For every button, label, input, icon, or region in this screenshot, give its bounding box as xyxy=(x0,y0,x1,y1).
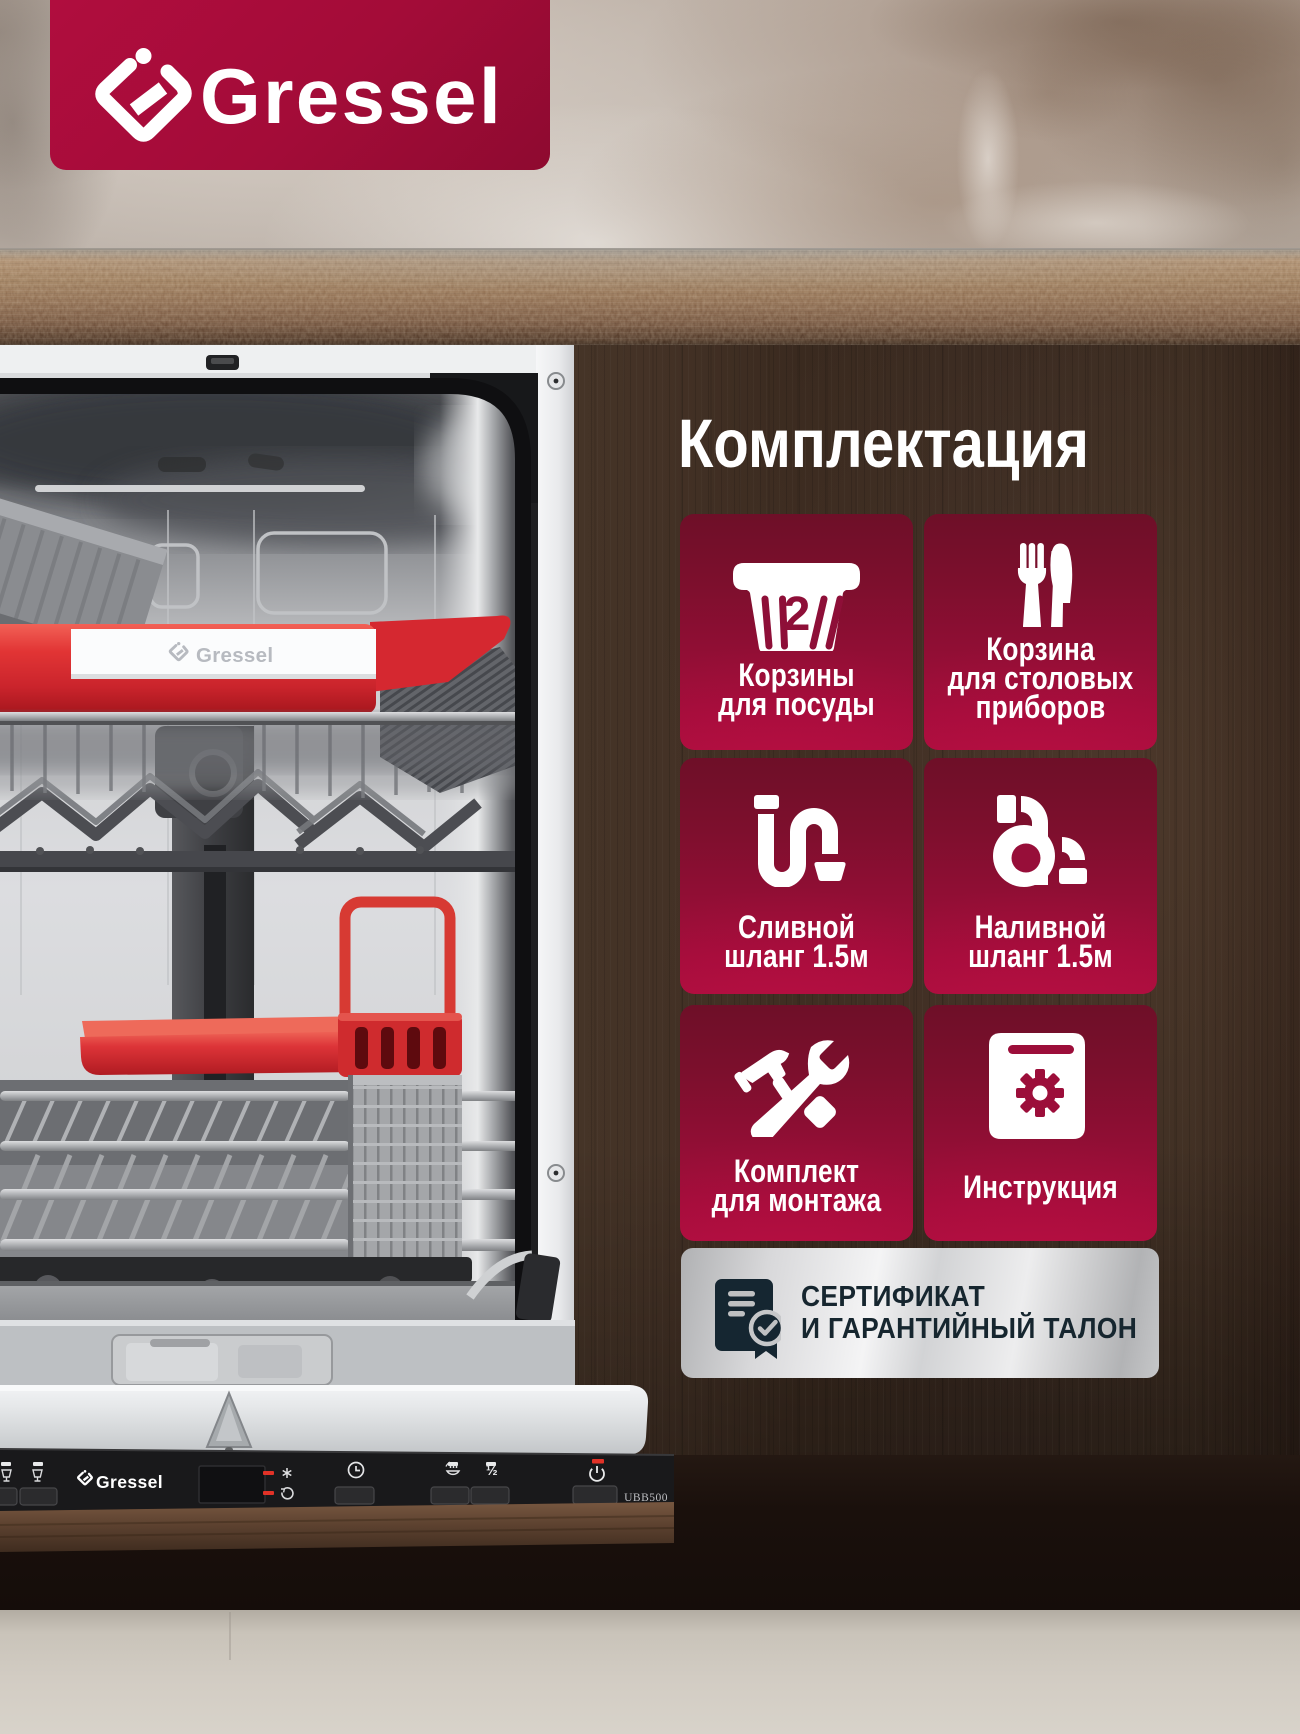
svg-text:Gressel: Gressel xyxy=(96,1472,163,1492)
svg-text:2: 2 xyxy=(784,588,811,641)
svg-text:½: ½ xyxy=(486,1462,498,1478)
svg-text:Gressel: Gressel xyxy=(200,52,503,140)
svg-text:Gressel: Gressel xyxy=(196,644,273,667)
